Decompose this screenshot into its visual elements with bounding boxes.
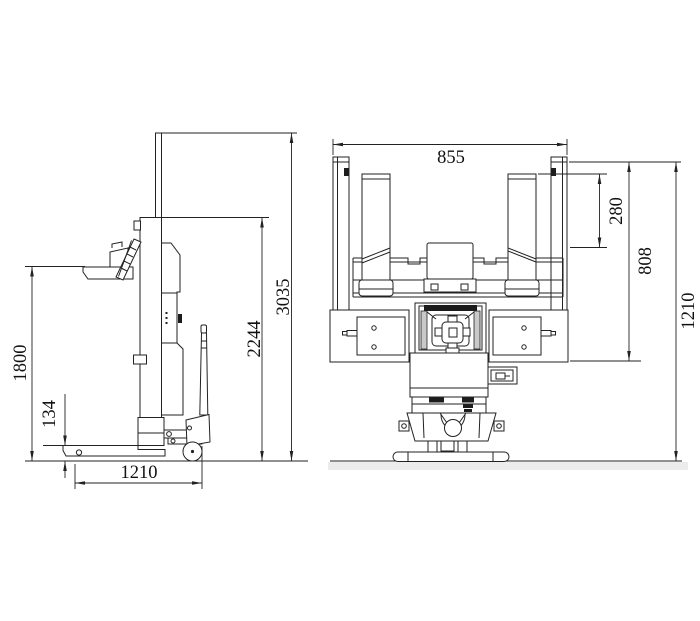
dim-overall-height-front: 1210 — [679, 293, 699, 330]
center-mechanism — [415, 303, 486, 354]
tiller-handle — [200, 325, 208, 415]
fork-leg — [63, 446, 165, 457]
dim-overall-height: 3035 — [274, 279, 294, 316]
dim-fork-height: 134 — [40, 400, 60, 428]
side-view — [25, 133, 308, 461]
mast-side-tab — [134, 355, 147, 364]
technical-drawing-page: 3035 2244 1800 134 1210 — [0, 0, 700, 621]
dim-base-length: 1210 — [121, 463, 158, 483]
steer-unit — [393, 413, 509, 462]
stacker-dimension-drawing: 3035 2244 1800 134 1210 — [0, 0, 700, 621]
wheel-hub — [445, 420, 462, 437]
dim-mast-height: 2244 — [245, 321, 265, 358]
dim-overall-width: 855 — [437, 148, 465, 168]
base-assembly — [138, 415, 210, 447]
mast — [134, 133, 165, 418]
front-view — [328, 157, 688, 470]
dim-platform-height: 1800 — [11, 345, 31, 382]
panel-connector — [178, 314, 182, 323]
caster-wheel — [76, 450, 81, 455]
center-block — [424, 243, 476, 292]
dim-body-height: 808 — [636, 247, 656, 275]
dim-fork-drop: 280 — [607, 197, 627, 225]
drive-wheel — [183, 442, 202, 461]
roller — [393, 452, 509, 462]
